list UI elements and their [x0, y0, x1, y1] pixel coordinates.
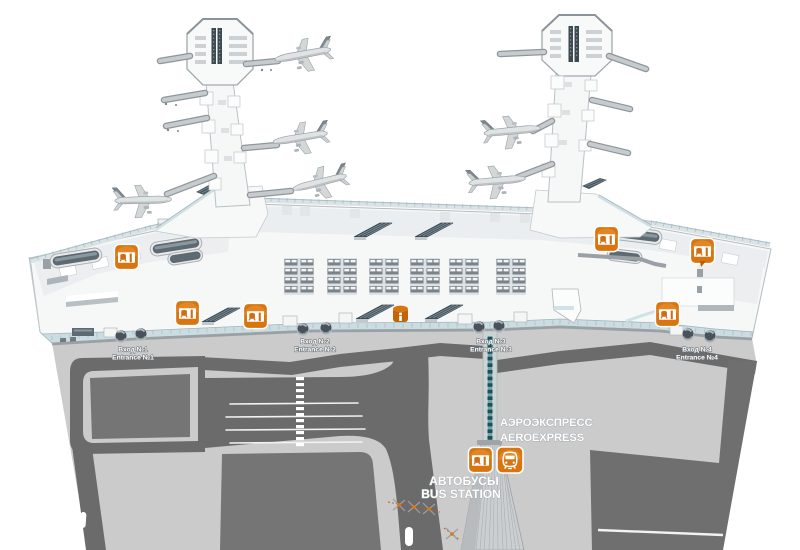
svg-text:АВТОБУСЫ: АВТОБУСЫ — [429, 474, 498, 488]
svg-text:АЭРОЭКСПРЕСС: АЭРОЭКСПРЕСС — [500, 417, 592, 429]
svg-text:Entrance №3: Entrance №3 — [470, 347, 512, 354]
svg-text:Entrance №4: Entrance №4 — [676, 355, 718, 362]
svg-text:Вход №3: Вход №3 — [476, 339, 506, 346]
svg-text:Вход №1: Вход №1 — [118, 347, 148, 354]
svg-text:AEROEXPRESS: AEROEXPRESS — [500, 432, 585, 444]
svg-text:BUS STATION: BUS STATION — [421, 487, 501, 501]
svg-text:Вход №4: Вход №4 — [682, 347, 712, 354]
svg-text:Entrance №1: Entrance №1 — [112, 355, 154, 362]
svg-text:Entrance №2: Entrance №2 — [294, 347, 336, 354]
svg-text:Вход №2: Вход №2 — [300, 339, 330, 346]
